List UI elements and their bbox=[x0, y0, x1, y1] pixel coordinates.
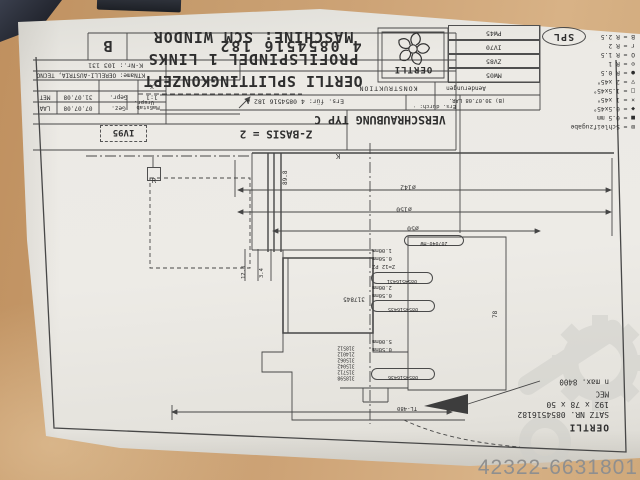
part-stack-item: 315712 bbox=[330, 368, 362, 373]
scale-mark: X bbox=[138, 82, 166, 89]
legend-item: ▽ = 2 x45° bbox=[545, 78, 635, 85]
footer-nmax: n max. 8400 bbox=[537, 377, 609, 385]
legend-item: × = 1 x45° bbox=[545, 96, 635, 103]
z-basis: Z-BASIS = 2 bbox=[220, 127, 332, 139]
part-mm5: 5.00mm bbox=[372, 338, 408, 344]
part-zpz: Z=12 PZ bbox=[372, 263, 408, 269]
checked-by: MET bbox=[33, 93, 57, 100]
part-oval-435: 0854516435 bbox=[371, 300, 435, 312]
dark-object-strip bbox=[97, 0, 181, 12]
part-mm4: 0.50mm bbox=[372, 292, 408, 298]
legend-item: □ = 1.5x45° bbox=[545, 87, 635, 94]
part-stack-item: 318598 bbox=[330, 374, 362, 379]
aenderungen-label: Aenderungen bbox=[436, 84, 496, 91]
part-oval-436: 0854516436 bbox=[371, 368, 435, 380]
dim-78: 78 bbox=[492, 298, 499, 318]
iv95-box: IV95 bbox=[100, 125, 147, 142]
footer-mec: MEC bbox=[584, 389, 609, 397]
legend-item: ⊙ = R 1 bbox=[545, 60, 635, 67]
revision-letter: B bbox=[92, 37, 124, 54]
dim-tl: TL-480 bbox=[386, 405, 428, 411]
rev-box-2-label: IV70 bbox=[486, 43, 502, 50]
legend-item: ■ = 0.5 mm bbox=[545, 114, 635, 121]
part-body-number: 317845 bbox=[337, 295, 371, 302]
dim-123: 12.3 bbox=[241, 252, 247, 279]
footer-dims: 192 x 78 x 50 bbox=[527, 399, 609, 408]
drawing-number: 4 0854516 182 bbox=[130, 37, 450, 54]
legend-item: ◆ = 0.5x45° bbox=[545, 105, 635, 112]
footer-satz: SATZ NR. 0854516182 bbox=[512, 409, 609, 418]
k-number: K-Nr.: 103 131 bbox=[33, 61, 143, 68]
revision-note: (B) 30.07.08 LAR. bbox=[444, 97, 510, 103]
r-marker-box: R bbox=[147, 167, 161, 181]
rev-box-4-label: MW05 bbox=[486, 71, 502, 78]
drawn-date: 07.07.08 bbox=[57, 104, 99, 111]
urspr-label: Urspr. bbox=[128, 99, 160, 105]
rev-box-4: MW05 bbox=[448, 67, 540, 83]
part-stack-item: 315062 bbox=[330, 356, 362, 361]
dim-898: 89.8 bbox=[282, 157, 289, 185]
k-marker: K bbox=[331, 151, 345, 159]
legend-item: ⊠ = Schleifzugabe bbox=[545, 123, 635, 130]
r-marker: R bbox=[152, 177, 156, 185]
legend-item: B = R 2.5 bbox=[545, 33, 635, 40]
drawn-by: LAA bbox=[33, 104, 57, 111]
konstruktion-label: KONSTRUKTION bbox=[344, 84, 432, 91]
part-oval-431: 0854516431 bbox=[371, 272, 433, 284]
ers-durch: Ers. durch: · bbox=[404, 103, 456, 109]
watermark-text: 42322-6631801 bbox=[478, 456, 638, 480]
type-note: VERSCHRAUBUNG TYP C bbox=[302, 113, 458, 126]
legend-item: r = R 2 bbox=[545, 42, 635, 49]
rev-box-1-label: PW45 bbox=[486, 29, 502, 36]
part-stack-item: 315042 bbox=[330, 362, 362, 367]
dim-34: 3.4 bbox=[259, 254, 265, 278]
ers-fuer: Ers. für: 4 0854516 182 A bbox=[162, 97, 344, 104]
rev-box-3-label: ZV85 bbox=[486, 57, 502, 64]
iv95-label: IV95 bbox=[101, 127, 146, 137]
part-mm6: 0.50mm bbox=[372, 346, 408, 352]
part-mm2: 0.50mm bbox=[372, 255, 408, 261]
legend-item: O = R 1.5 bbox=[545, 51, 635, 58]
part-stack-item: 214012 bbox=[330, 350, 362, 355]
checked-date: 31.07.08 bbox=[57, 93, 99, 100]
part-mm1: 1.00mm bbox=[372, 247, 408, 253]
kt-name: KTName: OERELLI-AUSTRIA, TECNO bbox=[33, 71, 145, 78]
part-oval-top: 207040-HW bbox=[404, 235, 464, 246]
dim-d50: ø50 bbox=[400, 224, 426, 231]
part-mm3: 2.00mm bbox=[372, 284, 408, 290]
legend-item: ● = R 0.5 bbox=[545, 69, 635, 76]
part-stack-item: 318512 bbox=[330, 344, 362, 349]
footer-brand: OERTLI bbox=[558, 421, 609, 432]
logo-wordmark: OERTLI bbox=[382, 64, 444, 74]
dim-d142: ø142 bbox=[390, 183, 426, 190]
dim-d150: ø150 bbox=[386, 205, 422, 212]
photo-of-technical-drawing: MASCHINE: SCM WINDOR PROFILSPINDEL 1 LIN… bbox=[0, 0, 640, 480]
